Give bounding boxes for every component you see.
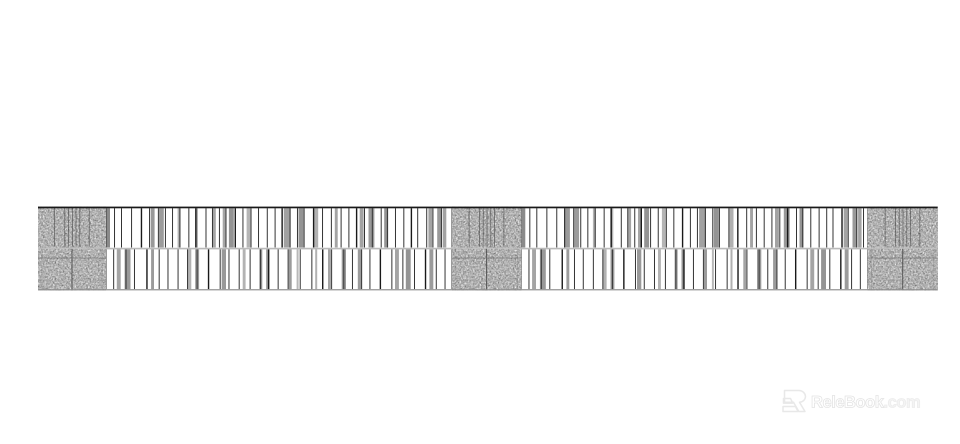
svg-text:ReleBook.com: ReleBook.com xyxy=(811,394,920,412)
